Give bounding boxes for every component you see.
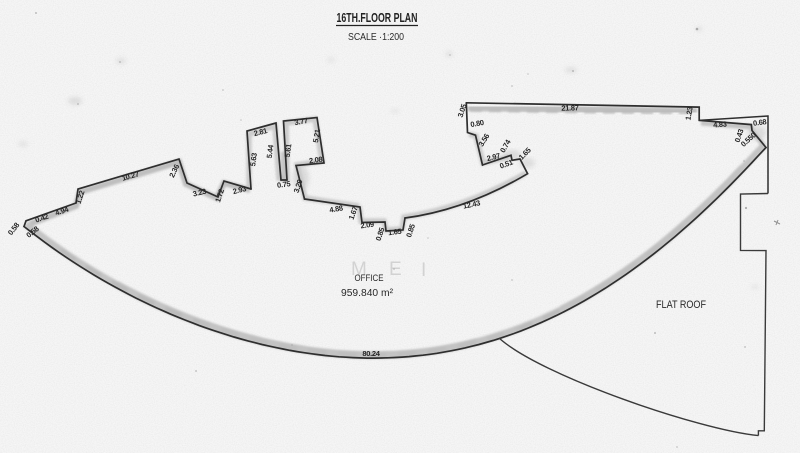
svg-text:2.08: 2.08 <box>308 155 323 166</box>
svg-text:80.24: 80.24 <box>362 349 380 358</box>
svg-text:5.63: 5.63 <box>248 152 259 167</box>
svg-text:SCALE ·1:200: SCALE ·1:200 <box>348 31 404 43</box>
svg-text:2.09: 2.09 <box>360 220 375 231</box>
svg-text:4.83: 4.83 <box>713 120 727 130</box>
svg-text:0.68: 0.68 <box>752 117 767 128</box>
svg-text:21.87: 21.87 <box>561 103 579 112</box>
svg-text:959.840 m²: 959.840 m² <box>341 288 394 299</box>
svg-text:16TH.FLOOR PLAN: 16TH.FLOOR PLAN <box>337 11 418 25</box>
svg-text:I: I <box>421 260 426 281</box>
svg-text:1.65: 1.65 <box>387 227 402 238</box>
svg-text:OFFICE: OFFICE <box>355 273 384 284</box>
svg-text:FLAT ROOF: FLAT ROOF <box>656 299 706 311</box>
svg-text:E: E <box>389 259 402 280</box>
svg-text:0.75: 0.75 <box>276 179 291 190</box>
svg-text:5.61: 5.61 <box>283 143 294 158</box>
